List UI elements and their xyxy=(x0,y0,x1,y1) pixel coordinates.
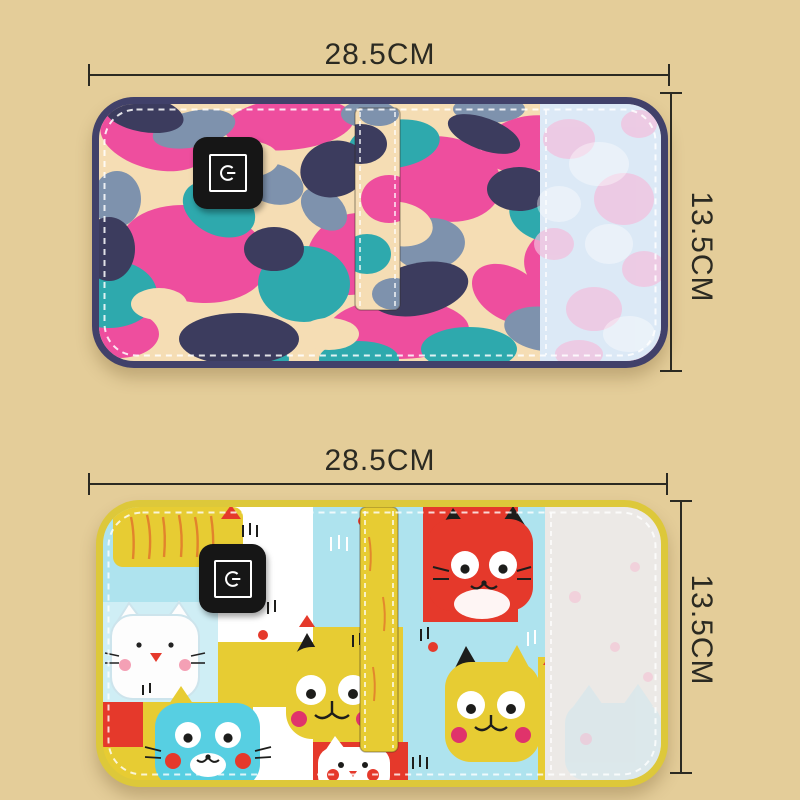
velcro-panel xyxy=(534,104,661,361)
top-bag-width-dimension-line xyxy=(88,64,670,86)
dimension-line xyxy=(88,483,668,485)
top-bag-height-dimension-line xyxy=(660,92,682,372)
power-icon xyxy=(222,568,244,590)
cat-print-warmer-bag xyxy=(96,500,668,787)
camouflage-warmer-bag xyxy=(92,97,668,368)
bottom-bag-width-dimension-line xyxy=(88,473,668,495)
velcro-panel xyxy=(545,507,661,780)
dimension-line xyxy=(680,500,682,774)
product-photo: 28.5CM xyxy=(0,0,800,800)
cat-red-top-right xyxy=(428,507,533,619)
dimension-cap xyxy=(668,64,670,86)
cat-yellow-right xyxy=(445,645,540,762)
power-button xyxy=(199,544,266,613)
dimension-cap xyxy=(670,772,692,774)
dimension-cap xyxy=(660,370,682,372)
power-button xyxy=(193,137,263,209)
bottom-bag-height-label: 13.5CM xyxy=(684,574,718,685)
dimension-cap xyxy=(666,473,668,495)
cat-pattern-art xyxy=(103,507,661,780)
dimension-line xyxy=(670,92,672,372)
bag-strap xyxy=(360,507,398,752)
power-icon xyxy=(217,162,239,184)
dimension-line xyxy=(88,74,670,76)
power-button-frame xyxy=(209,154,247,192)
top-bag-height-label: 13.5CM xyxy=(684,191,718,302)
power-button-frame xyxy=(214,560,252,598)
camouflage-pattern-art xyxy=(99,104,661,361)
